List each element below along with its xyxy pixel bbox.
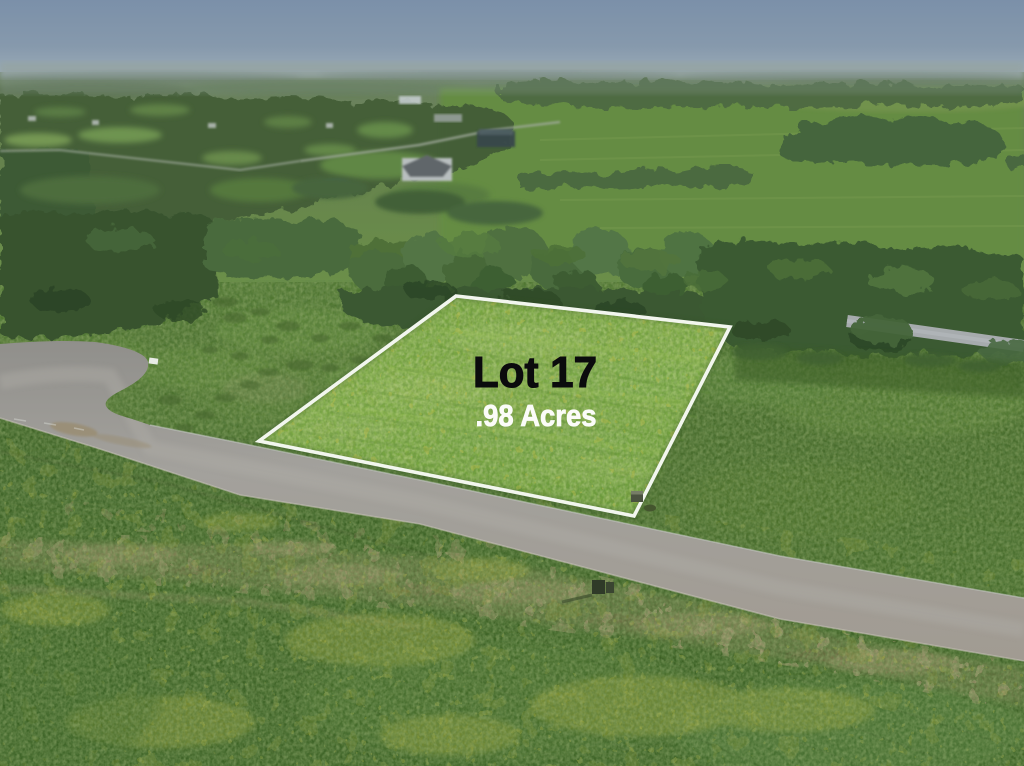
svg-text:.98 Acres: .98 Acres bbox=[476, 398, 597, 433]
svg-text:Lot 17: Lot 17 bbox=[473, 348, 597, 397]
